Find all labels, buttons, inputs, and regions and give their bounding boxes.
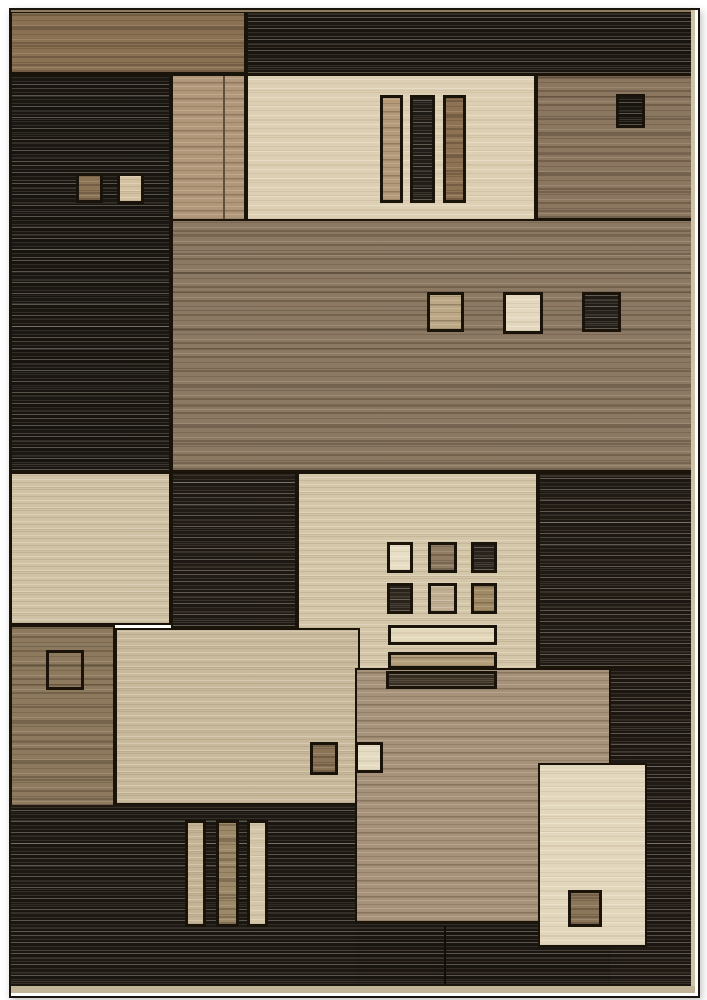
rug-outer-frame <box>9 8 700 998</box>
rug-photo <box>0 0 707 1000</box>
